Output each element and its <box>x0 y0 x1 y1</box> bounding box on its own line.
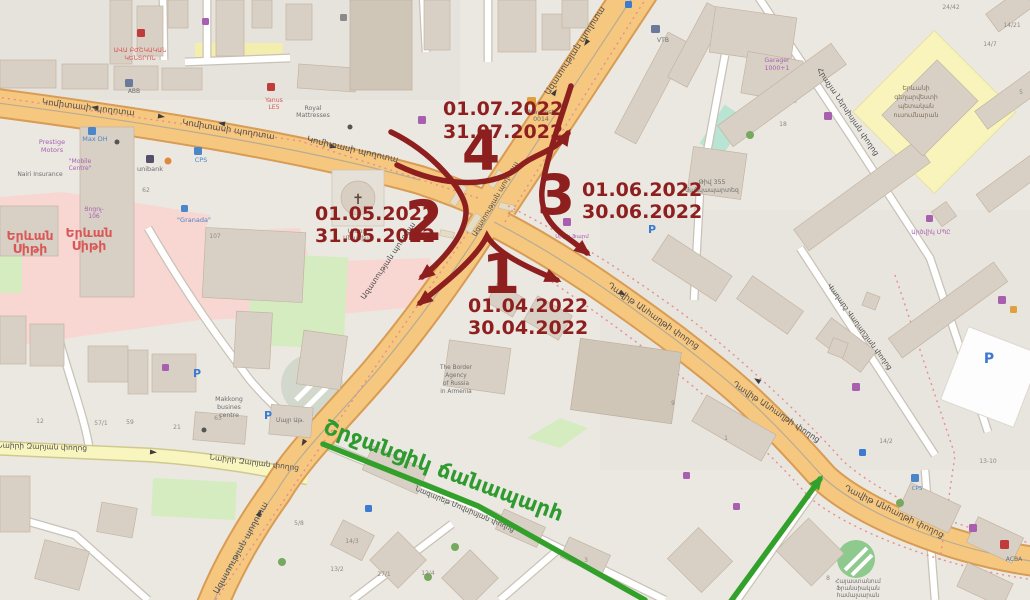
electronics-icon <box>418 116 426 124</box>
car-shop-icon <box>998 296 1006 304</box>
bank-vtb-icon <box>651 25 660 33</box>
bus-stop-icon <box>365 505 372 512</box>
fuel-icon <box>194 147 202 155</box>
shop-icon <box>162 364 169 371</box>
person-icon <box>165 158 172 165</box>
mail-icon <box>527 97 536 105</box>
bank-unibank-icon <box>146 155 154 163</box>
poi-dot-icon <box>202 428 207 433</box>
bus-stop-icon <box>859 449 866 456</box>
shop-icon <box>926 215 933 222</box>
restaurant-icon <box>852 383 860 391</box>
bank-abb-icon <box>125 79 133 87</box>
tree-icon <box>424 573 432 581</box>
fuel-icon <box>911 474 919 482</box>
dental-icon <box>137 29 145 37</box>
shop-icon <box>202 18 209 25</box>
tree-icon <box>451 543 459 551</box>
tree-icon <box>746 131 754 139</box>
map-annotation-image: ✝ <box>0 0 1030 600</box>
restaurant-icon <box>824 112 832 120</box>
shop-icon <box>181 205 188 212</box>
map-canvas: ✝ <box>0 0 1030 600</box>
shop-icon <box>683 472 690 479</box>
shop-maxdh-icon <box>88 127 96 135</box>
restaurant-icon <box>969 524 977 532</box>
poi-dot-icon <box>348 125 353 130</box>
pharmacy-cross-icon <box>267 83 275 91</box>
pharmacy-icon <box>563 218 571 226</box>
church-building <box>341 181 375 215</box>
bus-stop-icon <box>625 1 632 8</box>
waste-icon <box>340 14 347 21</box>
poi-dot-icon <box>115 140 120 145</box>
shop-icon <box>733 503 740 510</box>
hospital-cross-icon <box>1000 540 1009 549</box>
tree-icon <box>278 558 286 566</box>
park-area <box>151 478 237 520</box>
cafe-icon <box>1010 306 1017 313</box>
tree-icon <box>896 499 904 507</box>
